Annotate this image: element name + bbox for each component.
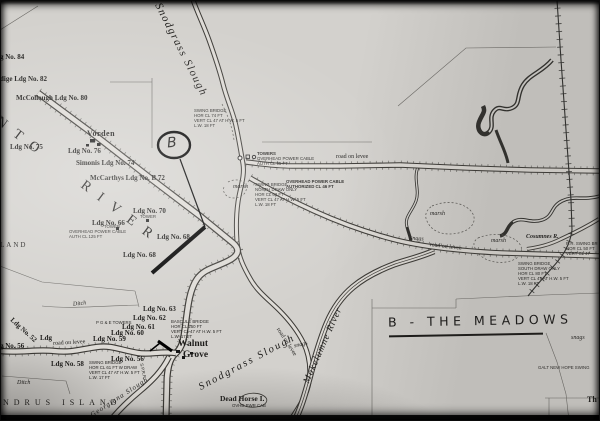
pge-towers-note: P G & E TOWERS [96, 321, 132, 326]
snags-label-southeast: snags [410, 235, 424, 242]
bascule-bridge-note: BASCULE BRIDGE HOR CL 250 FT VERT CL 47 … [171, 320, 222, 340]
leader-line [180, 159, 205, 227]
landing-72: McCarthys Ldg No. B 72 [90, 174, 165, 182]
section-lines [0, 6, 600, 421]
landing-82: dige Ldg No. 82 [0, 75, 47, 83]
landing-68-east: Ldg No. 68 [157, 233, 190, 241]
landing-70: Ldg No. 70 [133, 207, 166, 215]
rr-swing-bridge-note: R.R. SWING BR HOR CL 50 FT VERT CL 47 [566, 242, 598, 257]
landing-80: McCollough Ldg No. 80 [16, 94, 88, 102]
ditch-label-lower: Ditch [17, 380, 30, 386]
landing-58: Ldg No. 58 [51, 360, 84, 368]
dead-horse-cable-note: OVHD PWR CAB [232, 404, 266, 409]
landing-62: Ldg No. 62 [133, 314, 166, 322]
corner-partial-label: Th [587, 395, 597, 404]
swing-bridge-north-note: SWING BRIDGE HOR CL 74 FT VERT CL 47 AT … [194, 109, 245, 129]
andrus-island-label: NDRUS ISLAND [3, 398, 121, 407]
map-linework [0, 0, 600, 421]
landing-59: Ldg No. 59 [93, 335, 126, 343]
swing-bridge-south-note: SWING BRIDGE SOUTH DRAW ONLY HOR CL 80 F… [518, 262, 569, 287]
circle-b-mark: B [166, 135, 177, 152]
marsh-label-center: marsh [233, 184, 248, 190]
marsh-label-east-2: marsh [491, 238, 506, 244]
snags-label-right: snags [571, 335, 585, 341]
galt-new-hope-note: GALT NEW HOPE SWING [538, 366, 589, 371]
cable-125-note: OVERHEAD POWER CABLE AUTH CL 125 FT [69, 230, 126, 240]
road-on-levee-label-east: road on levee [336, 154, 368, 160]
tower-70-note: TOWER [140, 215, 156, 220]
cosumnes-river-label: Cosumnes R. [526, 234, 559, 240]
landing-partial: Ldg [40, 334, 52, 342]
landing-75: Ldg No. 75 [10, 143, 43, 151]
landing-76: Ldg No. 76 [68, 147, 101, 155]
marsh-label-east-1: marsh [430, 211, 445, 217]
vorden-label: Vorden [87, 129, 115, 138]
landing-56-partial: g No. 56 [0, 342, 24, 350]
towers-95-note: TOWERS OVERHEAD POWER CABLE AUTH CL 95 F… [257, 152, 314, 167]
landing-63: Ldg No. 63 [143, 305, 176, 313]
dead-horse-island-label: Dead Horse I. [220, 394, 264, 403]
landing-68-south: Ldg No. 68 [123, 251, 156, 259]
island-partial-label: LAND [0, 241, 27, 249]
walnut-grove-label-line2: Grove [183, 350, 208, 360]
landing-74: Simonis Ldg No. 74 [76, 159, 134, 167]
swing-bridge-58-note: SWING BRIDGE HOR CL 61 FT W DRAW VERT CL… [89, 361, 140, 381]
landing-84: g No. 84 [0, 53, 24, 61]
map-photo: Snodgrass Slough NTO RIVER Snodgrass Slo… [0, 0, 600, 421]
walnut-grove-label-line1: Walnut [178, 339, 208, 349]
swing-bridge-center-note: SWING BRIDGE NORTH DRAW ONLY HOR CL 63 F… [255, 183, 306, 208]
